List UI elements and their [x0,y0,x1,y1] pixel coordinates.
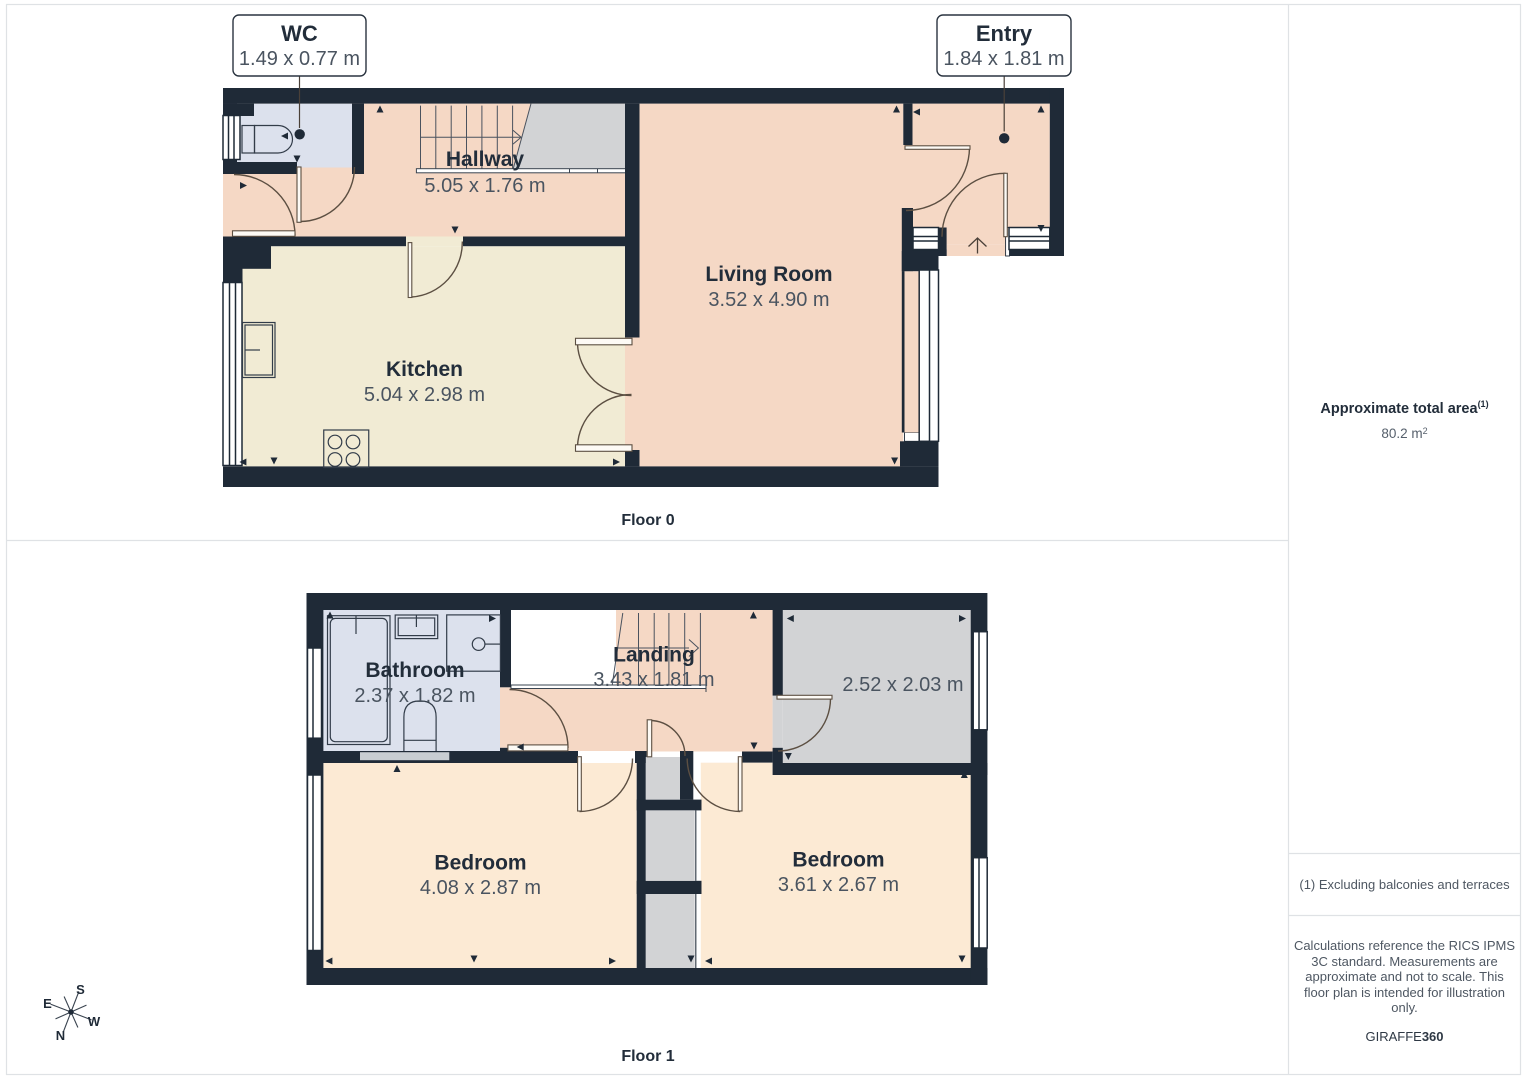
svg-text:3.52 x 4.90 m: 3.52 x 4.90 m [708,289,829,311]
svg-text:4.08 x 2.87 m: 4.08 x 2.87 m [420,877,541,899]
svg-text:Floor 0: Floor 0 [621,512,674,529]
svg-text:2.37 x 1.82 m: 2.37 x 1.82 m [354,685,475,707]
svg-text:N: N [56,1028,65,1043]
svg-text:Living Room: Living Room [705,263,832,286]
svg-text:3.43 x 1.81 m: 3.43 x 1.81 m [593,669,714,691]
svg-text:1.84 x 1.81 m: 1.84 x 1.81 m [943,48,1064,70]
svg-text:Landing: Landing [613,644,695,667]
svg-text:S: S [76,982,85,997]
svg-text:1.49 x 0.77 m: 1.49 x 0.77 m [239,48,360,70]
svg-text:Floor 1: Floor 1 [621,1048,674,1065]
svg-text:3.61 x 2.67 m: 3.61 x 2.67 m [778,874,899,896]
svg-text:5.04 x 2.98 m: 5.04 x 2.98 m [364,384,485,406]
svg-text:W: W [88,1014,101,1029]
svg-text:2.52 x 2.03 m: 2.52 x 2.03 m [842,674,963,696]
svg-text:Kitchen: Kitchen [386,358,463,381]
svg-text:Bedroom: Bedroom [792,849,884,872]
svg-text:Bedroom: Bedroom [434,852,526,875]
svg-text:WC: WC [281,21,318,46]
svg-text:Hallway: Hallway [446,148,525,171]
svg-text:Entry: Entry [976,21,1033,46]
svg-text:5.05 x 1.76 m: 5.05 x 1.76 m [424,175,545,197]
svg-text:E: E [43,996,52,1011]
svg-text:Bathroom: Bathroom [365,659,464,682]
